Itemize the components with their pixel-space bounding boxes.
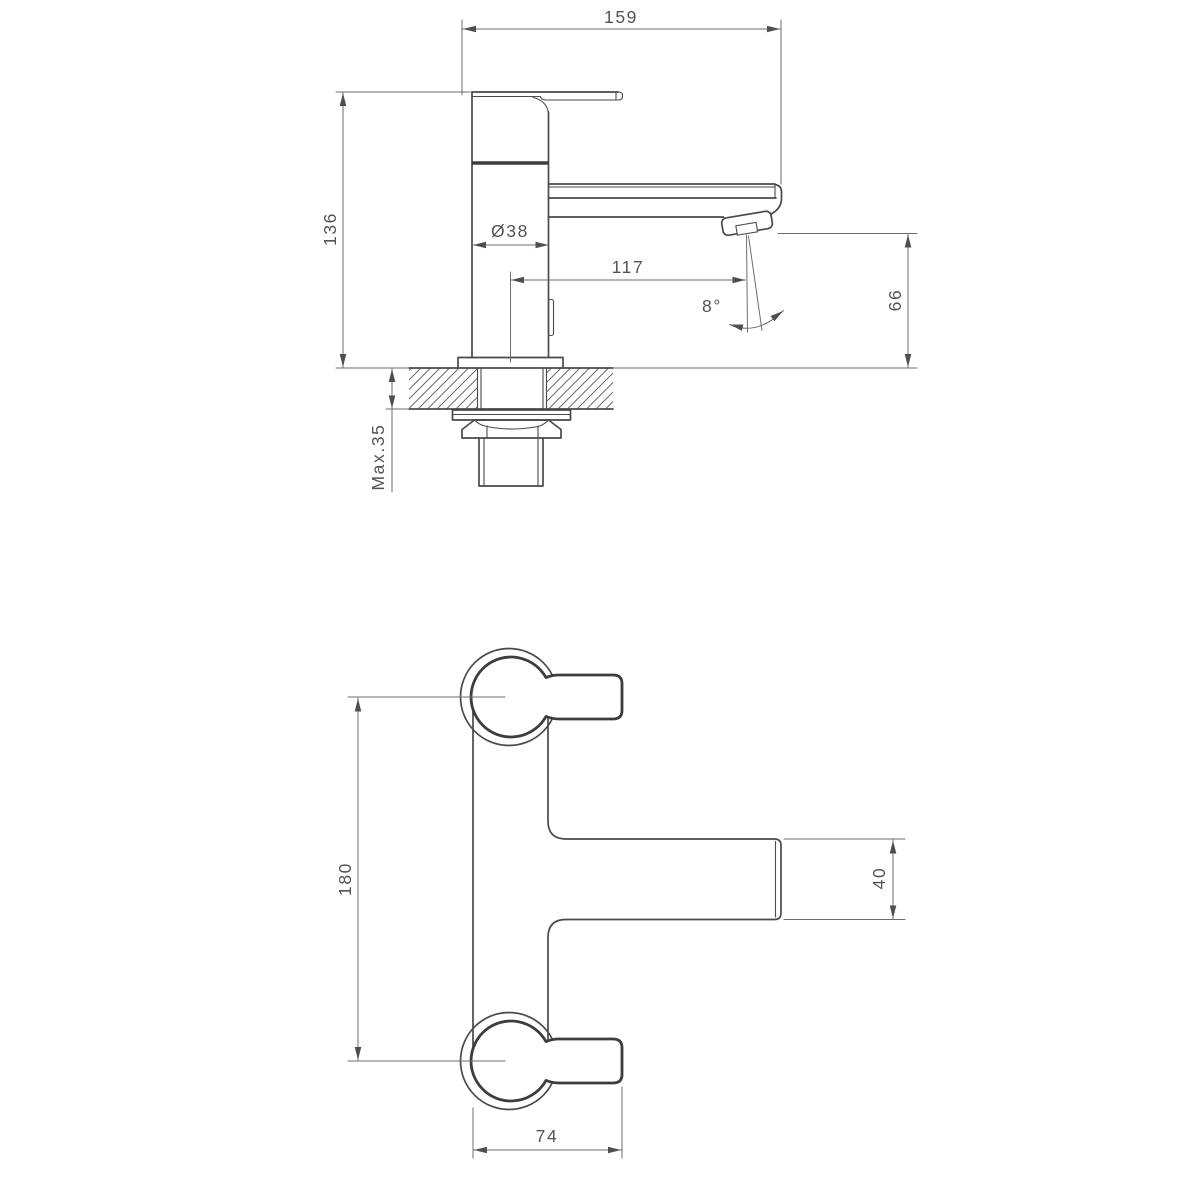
- shank-through-hole-walls: [478, 368, 547, 410]
- dim-max35-extension-lines: [336, 368, 409, 409]
- plan-view: 180 40 74: [335, 649, 905, 1159]
- dim-overall-height-label: 136: [320, 212, 340, 246]
- technical-drawing-page: 159 136 Ø38 117 66 8° Max.35: [0, 0, 1200, 1200]
- backnut-facets: [475, 420, 549, 438]
- dim-outlet-reach-label: 117: [612, 257, 645, 277]
- dim-body-length-label: 74: [536, 1126, 559, 1146]
- plan-body-and-spout: [348, 649, 781, 1110]
- dim-outlet-height-label: 66: [885, 289, 905, 312]
- dim-body-diameter-label: Ø38: [491, 221, 529, 241]
- deck-hatch-left: [319, 354, 568, 413]
- threaded-shank-inner-lines: [484, 438, 538, 486]
- spray-angle-label: 8°: [702, 296, 722, 316]
- dim-159-extension-lines: [462, 20, 781, 184]
- dim-handle-centres-label: 180: [335, 862, 355, 896]
- body-column-and-spout-outline: [548, 710, 781, 1048]
- handle-blade-lower-edge: [540, 97, 616, 101]
- faucet-dimension-drawing: 159 136 Ø38 117 66 8° Max.35: [0, 0, 1200, 1200]
- hatch-line-set: [459, 354, 708, 413]
- dim-66-extension-lines: [613, 234, 917, 369]
- water-stream: [729, 235, 785, 332]
- dim-overall-length-label: 159: [604, 7, 638, 27]
- plan-view-dimensions: 180 40 74: [335, 698, 905, 1158]
- hatch-line-set: [319, 354, 568, 413]
- handle-blade-end-cap: [616, 92, 623, 100]
- mounting-deck-section: [409, 358, 613, 487]
- handle-centre-lines: [348, 697, 505, 1061]
- dim-spout-width-label: 40: [869, 867, 889, 890]
- dim-max-deck-thickness-label: Max.35: [368, 424, 388, 491]
- threaded-shank: [479, 438, 543, 486]
- stream-angled-line: [749, 236, 763, 331]
- side-elevation-view: 159 136 Ø38 117 66 8° Max.35: [319, 7, 917, 492]
- angle-arrow-left: [729, 321, 743, 331]
- deck-hatch-right: [459, 354, 708, 413]
- stream-vertical-line: [747, 235, 748, 332]
- spout-profile: [549, 184, 782, 236]
- side-view-dimensions: 159 136 Ø38 117 66 8° Max.35: [320, 7, 917, 492]
